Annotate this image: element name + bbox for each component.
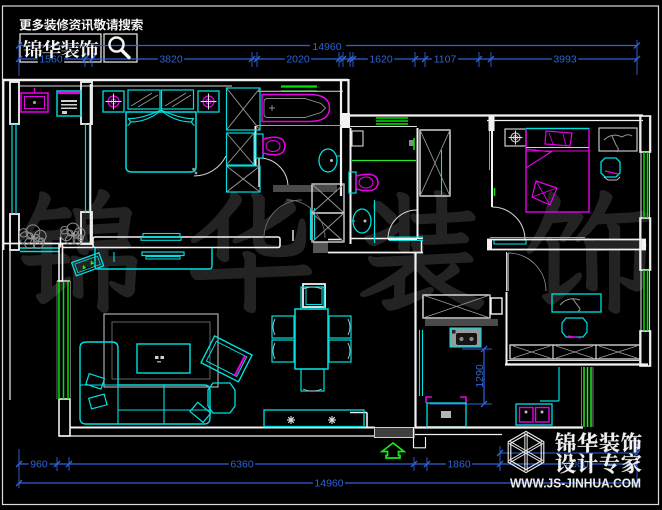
svg-text:960: 960 [30,459,48,471]
svg-text:3993: 3993 [553,54,577,66]
svg-text:2020: 2020 [286,54,310,66]
svg-text:1860: 1860 [447,459,471,471]
svg-text:1620: 1620 [369,54,393,66]
svg-text:6360: 6360 [230,459,254,471]
svg-text:3820: 3820 [159,54,183,66]
svg-text:WWW.JS-JINHUA.COM: WWW.JS-JINHUA.COM [510,477,641,491]
svg-text:14960: 14960 [314,478,343,490]
svg-text:1290: 1290 [474,364,486,388]
svg-text:1107: 1107 [434,54,457,66]
svg-text:14960: 14960 [312,41,341,53]
